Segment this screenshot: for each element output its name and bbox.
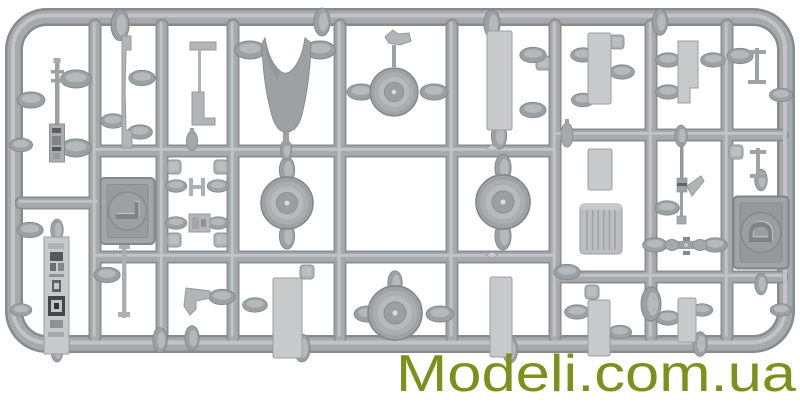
small-panel-right xyxy=(588,149,612,190)
instrument-panel-part xyxy=(44,237,69,354)
hull-panel-top-right xyxy=(588,33,611,104)
sprue-tag-L: L L xyxy=(101,178,155,244)
road-wheel-3 xyxy=(476,175,530,229)
photo-canvas: L L D D Modeli.com.ua xyxy=(0,0,800,407)
sprue-photo: L L D D Modeli.com.ua xyxy=(0,0,800,407)
watermark-text: Modeli.com.ua xyxy=(396,345,796,403)
hull-panel-bottom-center xyxy=(273,278,302,358)
tag-letter: L xyxy=(109,201,146,221)
road-wheel-4 xyxy=(368,286,422,340)
road-wheel-1 xyxy=(370,68,418,116)
hull-panel-bottom-right-2 xyxy=(678,298,696,342)
hull-panel-top-center xyxy=(487,31,512,130)
box-part xyxy=(189,214,210,232)
sprue-tag-D: D D xyxy=(734,197,789,269)
tag-letter: D xyxy=(742,221,779,245)
ribbed-seat-part xyxy=(580,204,622,254)
road-wheel-2 xyxy=(261,177,313,229)
